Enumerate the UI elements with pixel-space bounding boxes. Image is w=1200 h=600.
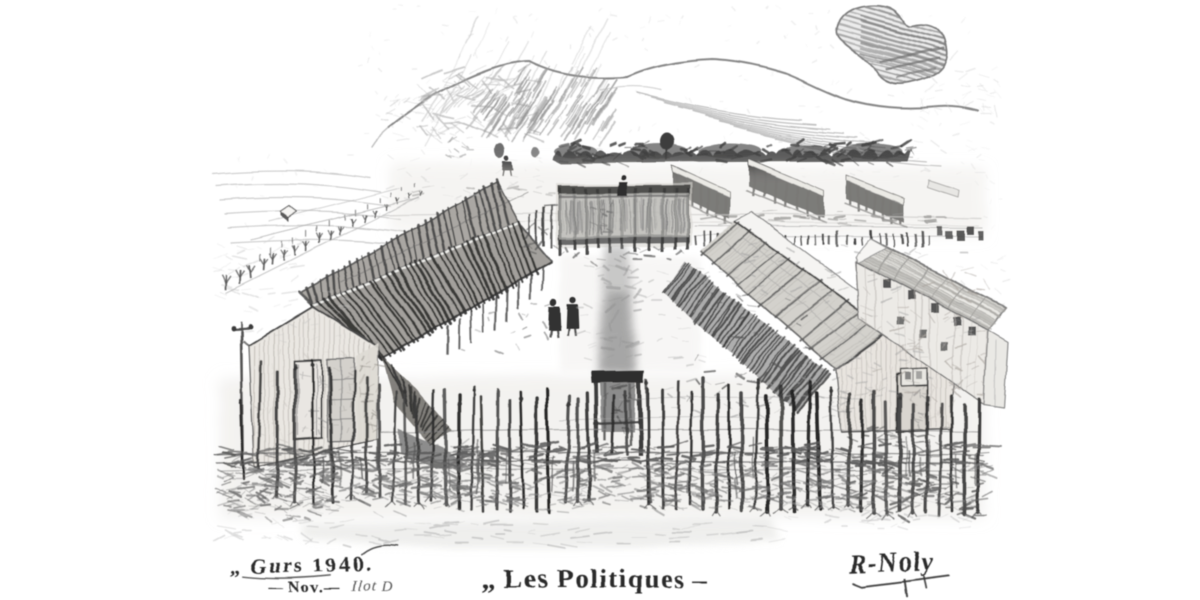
svg-text:„ Les Politiques –: „ Les Politiques – xyxy=(481,564,709,594)
svg-text:R-Noly: R-Noly xyxy=(847,547,935,579)
svg-text:Ilot D: Ilot D xyxy=(351,579,393,595)
svg-text:„ Gurs 1940.: „ Gurs 1940. xyxy=(230,551,373,578)
svg-text:— Nov.—: — Nov.— xyxy=(267,579,341,596)
